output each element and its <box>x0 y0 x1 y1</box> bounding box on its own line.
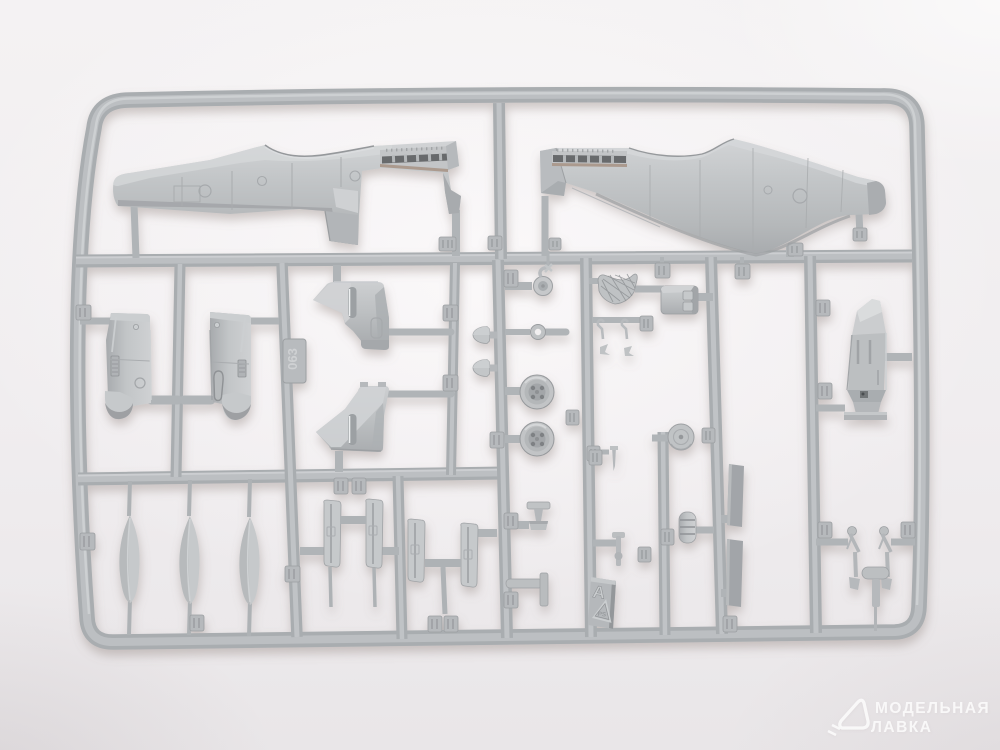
svg-text:PS: PS <box>597 612 606 619</box>
svg-text:063: 063 <box>285 348 300 370</box>
svg-text:МОДЕЛЬНАЯ: МОДЕЛЬНАЯ <box>875 700 990 717</box>
svg-text:A: A <box>592 582 607 603</box>
svg-text:ЛАВКА: ЛАВКА <box>871 719 932 736</box>
